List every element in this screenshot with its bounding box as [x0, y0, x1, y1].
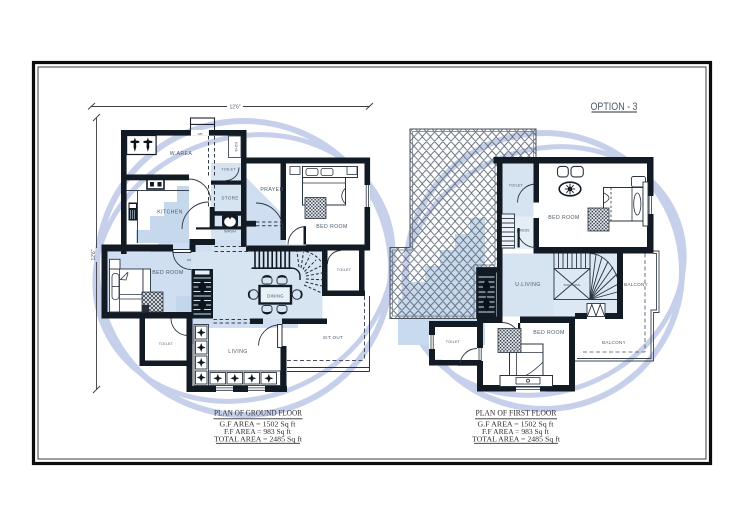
svg-text:WB: WB	[198, 132, 203, 136]
svg-text:BED ROOM: BED ROOM	[548, 215, 579, 221]
svg-text:W.AREA: W.AREA	[170, 151, 193, 157]
svg-text:BED ROOM: BED ROOM	[152, 270, 183, 276]
svg-text:TOILET: TOILET	[159, 342, 174, 346]
svg-text:TOTAL AREA = 2485 Sq ft: TOTAL AREA = 2485 Sq ft	[472, 434, 561, 443]
svg-text:PRAYER: PRAYER	[260, 187, 283, 193]
svg-text:STORE: STORE	[221, 196, 238, 201]
svg-text:BALCONY: BALCONY	[602, 340, 626, 345]
svg-text:DINING: DINING	[267, 294, 284, 299]
svg-text:KOYA: KOYA	[234, 142, 238, 152]
svg-text:TOTAL AREA = 2485 Sq ft: TOTAL AREA = 2485 Sq ft	[214, 434, 303, 443]
svg-text:SIT OUT: SIT OUT	[323, 335, 343, 340]
svg-text:TOILET: TOILET	[509, 184, 524, 188]
svg-text:OPTION - 3: OPTION - 3	[591, 101, 638, 113]
svg-text:BED ROOM: BED ROOM	[316, 224, 347, 230]
svg-text:12'6": 12'6"	[91, 249, 97, 260]
svg-text:12'6": 12'6"	[229, 105, 240, 111]
svg-text:TOILET: TOILET	[221, 168, 236, 172]
svg-text:PLAN OF GROUND FLOOR: PLAN OF GROUND FLOOR	[214, 408, 302, 418]
svg-text:KITCHEN: KITCHEN	[157, 210, 183, 216]
svg-text:TOILET: TOILET	[446, 340, 461, 344]
svg-text:PLAN OF FIRST FLOOR: PLAN OF FIRST FLOOR	[476, 408, 557, 418]
svg-text:D8: D8	[187, 258, 191, 262]
svg-text:BALCONY: BALCONY	[624, 282, 648, 287]
svg-text:9600 CURVE: 9600 CURVE	[564, 283, 581, 287]
svg-text:U.LIVING: U.LIVING	[515, 282, 540, 288]
svg-text:BED ROOM: BED ROOM	[533, 330, 564, 336]
svg-text:LIVING: LIVING	[228, 349, 247, 355]
svg-text:TOILET: TOILET	[337, 268, 352, 272]
svg-text:WASH: WASH	[224, 230, 236, 234]
